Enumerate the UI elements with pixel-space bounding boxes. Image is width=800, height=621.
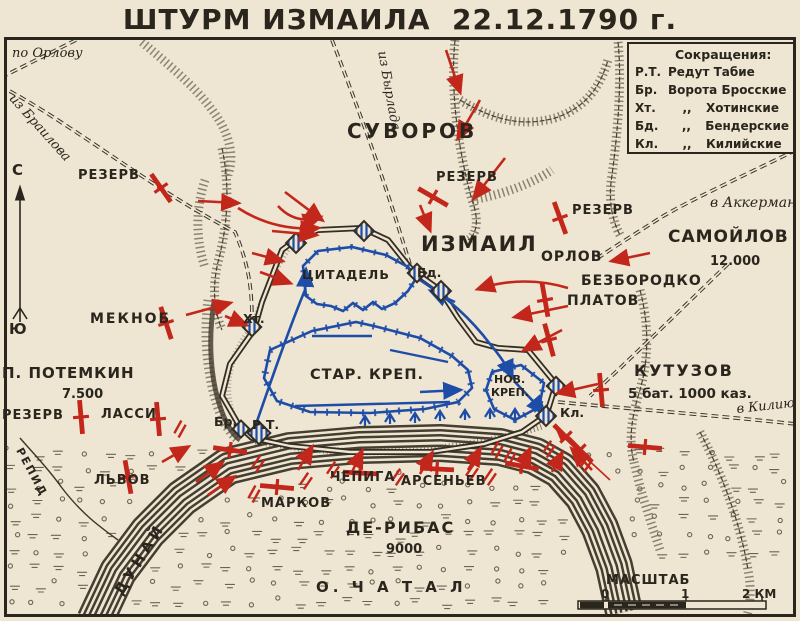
label-chatal-island: О. Ч А Т А Л	[316, 580, 467, 595]
legend-row: Бд. ,, Бендерские	[635, 117, 789, 135]
label-road-akkerman: в Аккерман	[710, 196, 796, 210]
label-lassi: ЛАССИ	[101, 408, 157, 421]
label-de-ribas: ДЕ-РИБАС	[346, 520, 455, 536]
label-markov: МАРКОВ	[261, 497, 331, 510]
label-arsenyev: АРСЕНЬЕВ	[401, 475, 487, 488]
label-bezborodko: БЕЗБОРОДКО	[581, 274, 702, 288]
label-reserve-nw: РЕЗЕРВ	[78, 169, 140, 182]
label-samoylov: САМОЙЛОВ	[668, 229, 789, 246]
izmail-assault-map: ШТУРМ ИЗМАИЛА 22.12.1790 г. Сокращения: …	[0, 0, 800, 621]
label-suvorov: СУВОРОВ	[347, 121, 477, 141]
legend-row: Хт. ,, Хотинские	[635, 99, 789, 117]
scale-tick-0: 0	[601, 588, 609, 600]
legend-row: Бр. Ворота Бросские	[635, 81, 789, 99]
label-old-fortress: СТАР. КРЕП.	[310, 368, 424, 383]
scale-tick-2: 2 КМ	[742, 588, 776, 600]
label-road-orlov: по Орлову	[12, 47, 83, 60]
legend-heading: Сокращения:	[635, 47, 789, 62]
label-reserve-east: РЕЗЕРВ	[572, 204, 634, 217]
compass-arrow	[13, 186, 27, 322]
label-orlov: ОРЛОВ	[541, 250, 602, 264]
label-potemkin: П. ПОТЕМКИН	[2, 366, 135, 381]
label-gate-kiliya: Кл.	[560, 407, 584, 420]
label-samoylov-strength: 12.000	[710, 255, 760, 268]
label-gate-brossky: Бр.	[214, 416, 237, 429]
label-redoubt-tabie: Р.Т.	[252, 419, 279, 432]
label-meknob: МЕКНОБ	[90, 312, 171, 326]
label-de-ribas-strength: 9000	[386, 543, 422, 556]
compass-south-label: Ю	[9, 322, 27, 337]
label-chepiga: ЧЕПИГА	[330, 471, 396, 484]
legend-row: Кл. ,, Килийские	[635, 135, 789, 153]
label-lvov: ЛЬВОВ	[94, 474, 151, 487]
legend-row: Р.Т. Редут Табие	[635, 63, 789, 81]
label-citadel: ЦИТАДЕЛЬ	[302, 269, 390, 282]
label-new-fortress-1: НОВ.	[494, 374, 525, 385]
compass-north-label: С	[12, 163, 23, 178]
label-new-fortress-2: КРЕП.	[491, 387, 529, 398]
label-kutuzov: КУТУЗОВ	[634, 363, 734, 379]
label-kutuzov-strength: 5 бат. 1000 каз.	[628, 388, 752, 402]
scale-tick-1: 1	[681, 588, 689, 600]
legend-box: Сокращения: Р.Т. Редут Табие Бр. Ворота …	[627, 42, 795, 154]
label-reserve-sw: РЕЗЕРВ	[2, 409, 64, 422]
label-gate-khotin: Хт.	[243, 313, 265, 326]
label-reserve-north: РЕЗЕРВ	[436, 171, 498, 184]
label-izmail: ИЗМАИЛ	[421, 234, 538, 255]
label-gate-bendery: Бд.	[417, 267, 441, 280]
scale-label: МАСШТАБ	[606, 574, 690, 587]
label-potemkin-strength: 7.500	[62, 388, 103, 401]
label-platov: ПЛАТОВ	[567, 294, 639, 308]
map-title: ШТУРМ ИЗМАИЛА 22.12.1790 г.	[0, 3, 800, 36]
